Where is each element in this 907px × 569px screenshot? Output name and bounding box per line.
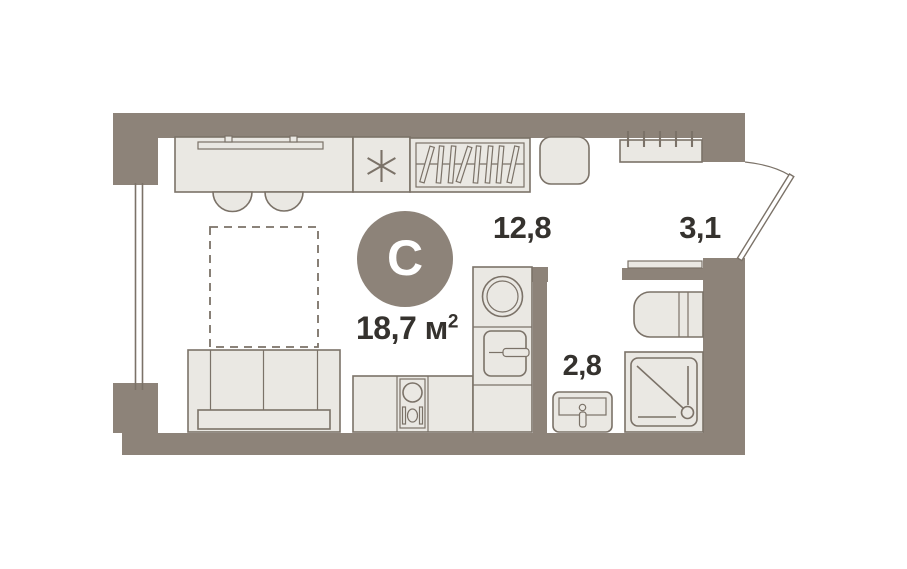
shower-outer (625, 352, 703, 432)
apartment-type-letter: С (387, 233, 423, 283)
chair (213, 192, 252, 212)
kitchen-counter (353, 376, 473, 432)
sofa-backrest (198, 410, 330, 429)
total-area-unit: м (425, 310, 448, 346)
wall-bathroom-left (533, 267, 547, 433)
wall-bottom-left-pier (113, 383, 158, 433)
bed-outline (210, 227, 318, 347)
table-bracket (225, 136, 232, 142)
wall-top-left-pier (113, 113, 158, 185)
entry-door-leaf (738, 174, 794, 261)
wardrobe (410, 138, 530, 192)
wash-basin (553, 392, 612, 432)
total-area-sup: 2 (448, 311, 458, 332)
bathroom-shelf (628, 261, 702, 268)
toilet-bowl (634, 292, 703, 337)
floor-plan-drawing (0, 0, 907, 569)
table-shelf (198, 142, 323, 149)
drain-icon (682, 407, 694, 419)
apartment-type-badge: С (357, 211, 453, 307)
faucet-icon (580, 412, 587, 427)
faucet-icon (503, 349, 529, 357)
dining-table (175, 136, 353, 212)
entry-door (738, 162, 794, 261)
door-swing-arc (745, 162, 789, 175)
total-area-value: 18,7 (356, 310, 416, 346)
bathroom-fixtures (553, 261, 703, 432)
wall-top (113, 113, 745, 138)
wall-bottom (122, 433, 745, 455)
chair (265, 192, 303, 211)
room-area-living-kitchen: 12,8 (493, 210, 551, 246)
table-bracket (290, 136, 297, 142)
room-area-bathroom: 2,8 (563, 350, 602, 383)
studio-floor-plan: С 18,7 м2 12,8 3,1 2,8 (0, 0, 907, 569)
toilet (634, 292, 703, 337)
room-area-hallway: 3,1 (679, 210, 721, 246)
window (136, 183, 143, 390)
wall-right (703, 258, 745, 455)
total-area-label: 18,7 м2 (356, 310, 458, 347)
pouf (540, 137, 589, 184)
sofa (188, 350, 340, 432)
wall-top-right-pier (702, 113, 745, 162)
fridge (353, 137, 410, 192)
shower-tray (625, 352, 703, 432)
kitchen-wet-unit (473, 267, 532, 432)
wall-bathroom-partition (622, 268, 703, 280)
counter-top (353, 376, 473, 432)
